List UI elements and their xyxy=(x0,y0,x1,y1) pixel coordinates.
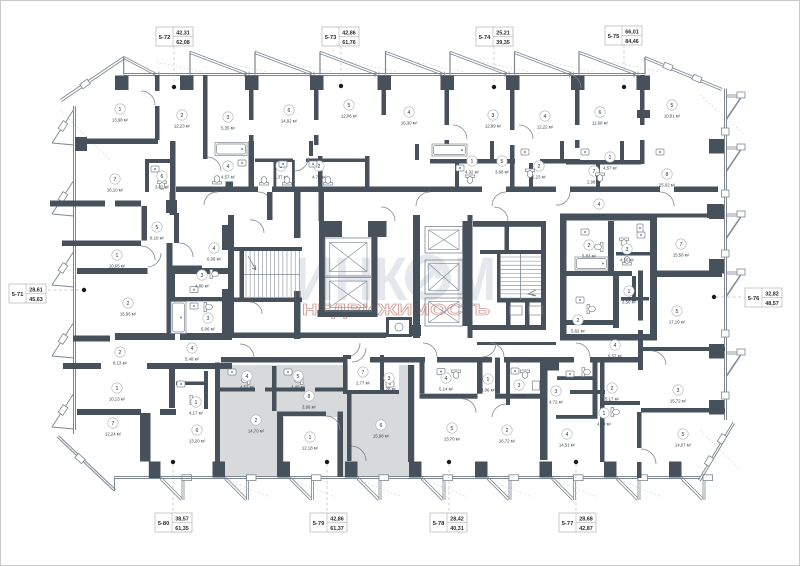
svg-text:15,96 м²: 15,96 м² xyxy=(120,312,137,317)
svg-text:61,35: 61,35 xyxy=(175,526,189,532)
svg-text:2: 2 xyxy=(181,113,184,119)
svg-text:3,02 м²: 3,02 м² xyxy=(155,185,170,190)
svg-text:4,32 м²: 4,32 м² xyxy=(465,170,480,175)
svg-text:14,92 м²: 14,92 м² xyxy=(281,119,298,124)
svg-text:2: 2 xyxy=(318,164,321,170)
svg-text:1: 1 xyxy=(309,435,312,441)
svg-text:61,37: 61,37 xyxy=(330,526,344,532)
svg-text:40,31: 40,31 xyxy=(450,526,464,532)
svg-text:1: 1 xyxy=(603,411,606,417)
svg-text:1: 1 xyxy=(609,155,612,161)
svg-text:15,72 м²: 15,72 м² xyxy=(670,399,687,404)
svg-text:12,23 м²: 12,23 м² xyxy=(174,124,191,129)
svg-text:5-74: 5-74 xyxy=(479,35,491,41)
svg-text:12,99 м²: 12,99 м² xyxy=(485,124,502,129)
svg-text:4,80 м²: 4,80 м² xyxy=(195,284,210,289)
svg-text:12,22 м²: 12,22 м² xyxy=(537,125,554,130)
svg-text:5: 5 xyxy=(348,103,351,109)
svg-text:12,18 м²: 12,18 м² xyxy=(302,446,319,451)
svg-text:5-75: 5-75 xyxy=(608,34,620,40)
svg-text:5,06 м²: 5,06 м² xyxy=(201,327,216,332)
svg-text:5-77: 5-77 xyxy=(562,521,574,527)
svg-text:5,48 м²: 5,48 м² xyxy=(185,357,200,362)
svg-text:3: 3 xyxy=(207,316,210,322)
svg-text:14,51 м²: 14,51 м² xyxy=(559,443,576,448)
svg-text:3,60 м²: 3,60 м² xyxy=(512,394,527,399)
svg-text:25,02 м²: 25,02 м² xyxy=(659,183,676,188)
svg-text:8: 8 xyxy=(308,394,311,400)
svg-text:8,13 м²: 8,13 м² xyxy=(113,361,128,366)
svg-text:42,87: 42,87 xyxy=(579,526,593,532)
svg-text:3,06 м²: 3,06 м² xyxy=(481,388,496,393)
svg-text:16,30 м²: 16,30 м² xyxy=(401,121,418,126)
svg-text:32,82: 32,82 xyxy=(765,292,779,298)
svg-text:2: 2 xyxy=(588,243,591,249)
svg-text:3,68 м²: 3,68 м² xyxy=(495,170,510,175)
svg-text:13,20 м²: 13,20 м² xyxy=(189,439,206,444)
svg-text:16,72 м²: 16,72 м² xyxy=(499,439,516,444)
svg-text:61,76: 61,76 xyxy=(342,40,356,46)
svg-text:28,61: 28,61 xyxy=(29,288,43,294)
svg-text:5: 5 xyxy=(682,432,685,438)
svg-text:10,81 м²: 10,81 м² xyxy=(664,114,681,119)
svg-text:4,72 м²: 4,72 м² xyxy=(312,175,327,180)
svg-text:5,17 м²: 5,17 м² xyxy=(605,397,620,402)
svg-text:2: 2 xyxy=(506,428,509,434)
svg-text:3,28 м²: 3,28 м² xyxy=(382,387,397,392)
svg-text:14,07 м²: 14,07 м² xyxy=(675,443,692,448)
svg-text:7: 7 xyxy=(593,169,596,175)
svg-text:3: 3 xyxy=(492,113,495,119)
svg-text:5: 5 xyxy=(451,426,454,432)
svg-text:6: 6 xyxy=(288,108,291,114)
svg-text:5-76: 5-76 xyxy=(748,296,760,302)
svg-text:3,99 м²: 3,99 м² xyxy=(302,405,317,410)
svg-text:42,31: 42,31 xyxy=(176,31,190,37)
svg-text:42,86: 42,86 xyxy=(342,31,356,37)
svg-text:3: 3 xyxy=(388,376,391,382)
svg-text:5: 5 xyxy=(156,225,159,231)
svg-text:5,83 м²: 5,83 м² xyxy=(582,254,597,259)
svg-text:1: 1 xyxy=(471,159,474,165)
svg-text:2: 2 xyxy=(127,301,130,307)
svg-text:10,65 м²: 10,65 м² xyxy=(109,264,126,269)
svg-text:4: 4 xyxy=(408,110,411,116)
svg-text:6,57 м²: 6,57 м² xyxy=(608,354,623,359)
svg-text:6: 6 xyxy=(599,110,602,116)
svg-text:3: 3 xyxy=(626,247,629,253)
svg-text:4: 4 xyxy=(614,343,617,349)
svg-text:5: 5 xyxy=(676,309,679,315)
svg-text:6,23 м²: 6,23 м² xyxy=(532,175,547,180)
svg-text:1: 1 xyxy=(195,400,198,406)
svg-text:7: 7 xyxy=(114,177,117,183)
svg-text:11,60 м²: 11,60 м² xyxy=(592,121,609,126)
svg-text:48,57: 48,57 xyxy=(765,301,779,307)
svg-text:1: 1 xyxy=(487,377,490,383)
svg-text:2: 2 xyxy=(611,386,614,392)
svg-text:3: 3 xyxy=(518,383,521,389)
svg-text:4: 4 xyxy=(566,432,569,438)
svg-text:8,10 м²: 8,10 м² xyxy=(150,236,165,241)
svg-text:16,10 м²: 16,10 м² xyxy=(107,188,124,193)
svg-text:10,13 м²: 10,13 м² xyxy=(109,397,126,402)
svg-text:4: 4 xyxy=(598,202,601,208)
svg-text:14,70 м²: 14,70 м² xyxy=(248,429,265,434)
svg-text:4,57 м²: 4,57 м² xyxy=(603,166,618,171)
svg-text:15,98 м²: 15,98 м² xyxy=(373,434,390,439)
svg-text:5: 5 xyxy=(671,103,674,109)
svg-text:4: 4 xyxy=(246,374,249,380)
svg-text:5-80: 5-80 xyxy=(158,521,170,527)
svg-text:62,08: 62,08 xyxy=(176,40,190,46)
svg-text:7: 7 xyxy=(362,370,365,376)
svg-text:2: 2 xyxy=(538,164,541,170)
svg-text:2: 2 xyxy=(255,418,258,424)
svg-text:4,40 м²: 4,40 м² xyxy=(291,385,306,390)
svg-text:45,63: 45,63 xyxy=(29,297,43,303)
svg-text:2: 2 xyxy=(577,318,580,324)
svg-text:5-78: 5-78 xyxy=(433,521,445,527)
svg-text:4: 4 xyxy=(191,346,194,352)
svg-text:42,86: 42,86 xyxy=(330,517,344,523)
svg-text:6: 6 xyxy=(161,174,164,180)
svg-text:4: 4 xyxy=(213,246,216,252)
svg-text:2,77 м²: 2,77 м² xyxy=(356,381,371,386)
svg-text:6: 6 xyxy=(380,423,383,429)
svg-text:4,17 м²: 4,17 м² xyxy=(189,411,204,416)
svg-text:4,30 м²: 4,30 м² xyxy=(597,422,612,427)
svg-text:4: 4 xyxy=(445,376,448,382)
svg-text:4,50 м²: 4,50 м² xyxy=(620,258,635,263)
svg-text:5-73: 5-73 xyxy=(325,35,337,41)
svg-text:13,70 м²: 13,70 м² xyxy=(444,437,461,442)
svg-text:4,23 м²: 4,23 м² xyxy=(592,213,607,218)
svg-text:6: 6 xyxy=(196,428,199,434)
svg-text:4: 4 xyxy=(227,164,230,170)
svg-text:38,57: 38,57 xyxy=(175,517,189,523)
svg-text:3: 3 xyxy=(677,388,680,394)
svg-text:4,57 м²: 4,57 м² xyxy=(221,175,236,180)
svg-text:1: 1 xyxy=(119,107,122,113)
svg-text:17,10 м²: 17,10 м² xyxy=(669,320,686,325)
svg-text:4,57 м²: 4,57 м² xyxy=(240,385,255,390)
svg-text:84,46: 84,46 xyxy=(625,39,639,45)
svg-text:12,06 м²: 12,06 м² xyxy=(341,114,358,119)
svg-text:4: 4 xyxy=(544,114,547,120)
svg-text:7: 7 xyxy=(680,242,683,248)
svg-text:7: 7 xyxy=(112,421,115,427)
svg-text:12,24 м²: 12,24 м² xyxy=(105,432,122,437)
svg-text:8: 8 xyxy=(666,172,669,178)
svg-text:4,72 м²: 4,72 м² xyxy=(549,400,564,405)
svg-text:2: 2 xyxy=(119,350,122,356)
svg-text:5-72: 5-72 xyxy=(159,35,171,41)
svg-text:5,62 м²: 5,62 м² xyxy=(571,329,586,334)
svg-text:15,58 м²: 15,58 м² xyxy=(673,253,690,258)
svg-text:1: 1 xyxy=(116,253,119,259)
svg-text:5,14 м²: 5,14 м² xyxy=(439,387,454,392)
svg-text:5,35 м²: 5,35 м² xyxy=(221,126,236,131)
svg-text:39,35: 39,35 xyxy=(496,40,510,46)
svg-text:5-79: 5-79 xyxy=(313,521,325,527)
svg-text:1: 1 xyxy=(116,386,119,392)
svg-text:5: 5 xyxy=(501,159,504,165)
svg-text:13,98 м²: 13,98 м² xyxy=(112,118,129,123)
svg-text:5: 5 xyxy=(297,374,300,380)
svg-text:3: 3 xyxy=(227,115,230,121)
svg-text:3,50 м²: 3,50 м² xyxy=(622,300,637,305)
svg-text:28,68: 28,68 xyxy=(579,517,593,523)
svg-text:25,21: 25,21 xyxy=(496,31,510,37)
svg-text:1: 1 xyxy=(628,289,631,295)
svg-text:3: 3 xyxy=(555,389,558,395)
svg-text:3: 3 xyxy=(201,273,204,279)
svg-text:5-71: 5-71 xyxy=(12,292,24,298)
svg-text:6,06 м²: 6,06 м² xyxy=(207,257,222,262)
svg-text:66,01: 66,01 xyxy=(625,30,639,36)
svg-text:28,42: 28,42 xyxy=(450,517,464,523)
